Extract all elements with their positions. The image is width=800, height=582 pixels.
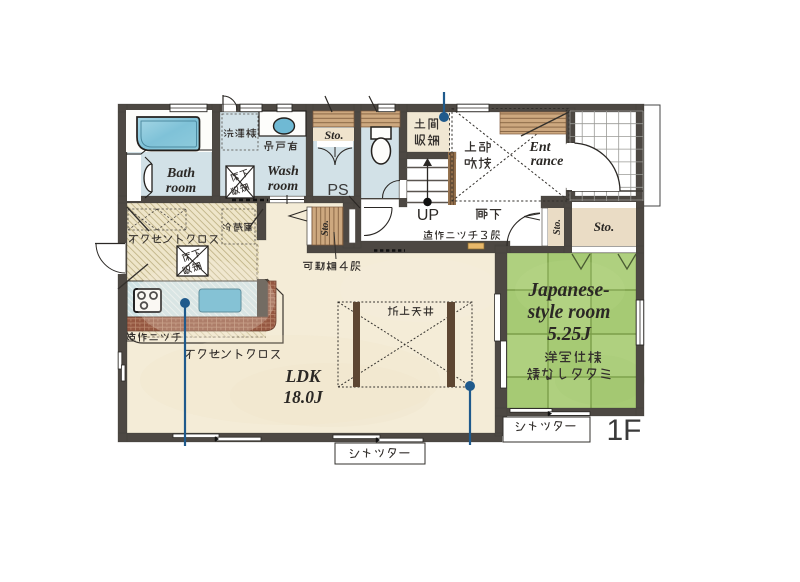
svg-text:Sto.: Sto. [324,128,343,142]
svg-text:Japanese-: Japanese- [527,280,609,301]
svg-text:Bath: Bath [166,166,195,181]
svg-text:room: room [268,179,298,194]
svg-text:UP: UP [417,207,439,224]
svg-text:1F: 1F [606,414,641,447]
svg-text:room: room [166,181,196,196]
svg-text:style room: style room [527,302,611,323]
svg-text:18.0J: 18.0J [283,387,324,407]
svg-text:Sto.: Sto. [320,220,331,236]
svg-text:PS: PS [327,182,348,199]
svg-text:Wash: Wash [267,164,299,179]
svg-text:Ent: Ent [528,140,551,155]
svg-text:5.25J: 5.25J [547,324,592,345]
svg-text:Sto.: Sto. [552,219,563,235]
svg-text:LDK: LDK [285,366,322,386]
svg-text:Sto.: Sto. [594,219,615,234]
svg-text:rance: rance [531,154,564,169]
